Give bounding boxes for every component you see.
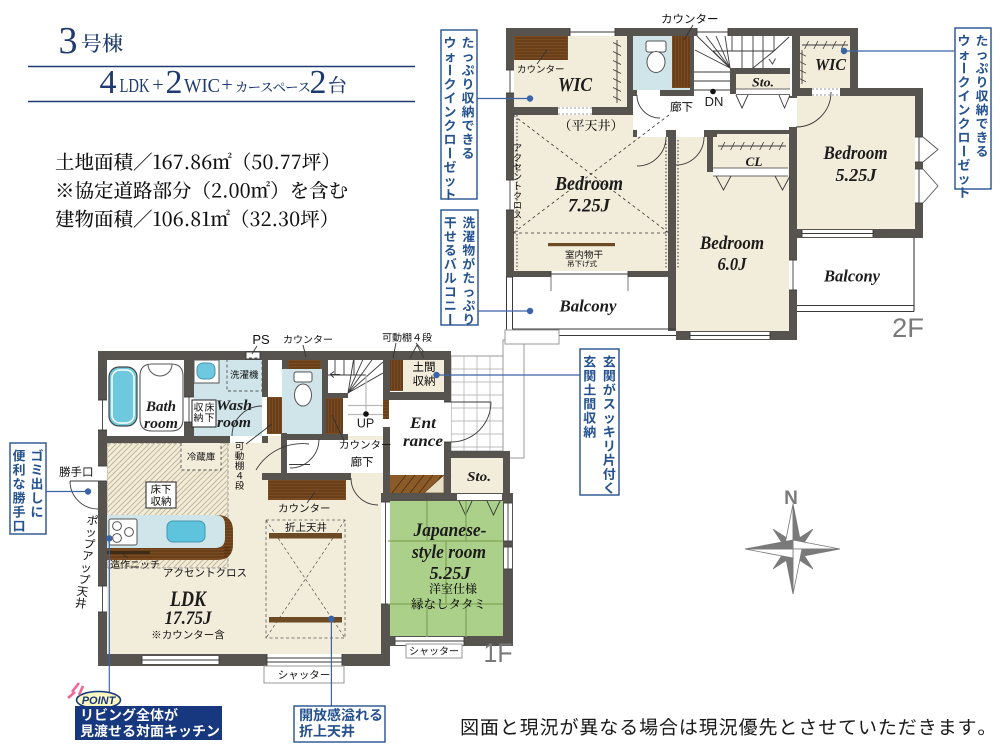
svg-text:4: 4 (100, 64, 117, 101)
svg-text:Balcony: Balcony (559, 297, 617, 316)
svg-text:UP: UP (357, 417, 374, 431)
svg-text:2: 2 (166, 64, 183, 101)
svg-text:5.25J: 5.25J (430, 563, 472, 583)
svg-text:5.25J: 5.25J (836, 165, 878, 185)
svg-text:2: 2 (310, 64, 327, 101)
svg-text:CL: CL (746, 154, 763, 169)
svg-text:Sto.: Sto. (752, 75, 774, 90)
svg-text:room: room (217, 415, 251, 431)
svg-text:PS: PS (252, 332, 270, 347)
svg-text:rance: rance (403, 433, 443, 450)
svg-text:17.75J: 17.75J (165, 608, 212, 629)
svg-text:WIC: WIC (815, 55, 847, 74)
svg-text:+: + (221, 74, 232, 96)
svg-text:Bedroom: Bedroom (554, 173, 623, 195)
svg-text:Sto.: Sto. (467, 470, 491, 485)
svg-text:2F: 2F (892, 313, 924, 343)
svg-text:+: + (152, 74, 163, 96)
svg-text:POINT: POINT (82, 695, 117, 707)
svg-text:Ent: Ent (409, 415, 437, 432)
svg-text:WIC: WIC (184, 75, 220, 97)
svg-text:WIC: WIC (558, 74, 593, 96)
svg-text:DN: DN (705, 94, 724, 109)
svg-text:Bedroom: Bedroom (699, 233, 764, 254)
svg-text:Bath: Bath (145, 399, 176, 415)
svg-text:Balcony: Balcony (823, 267, 880, 286)
svg-text:3: 3 (59, 20, 78, 62)
svg-text:Japanese-: Japanese- (413, 520, 487, 541)
svg-text:style room: style room (411, 542, 486, 563)
svg-text:6.0J: 6.0J (718, 254, 748, 274)
svg-text:LDK: LDK (120, 75, 150, 97)
svg-text:Wash: Wash (216, 398, 252, 414)
svg-text:7.25J: 7.25J (568, 196, 610, 217)
svg-text:1F: 1F (484, 638, 513, 668)
svg-text:room: room (144, 416, 178, 432)
svg-text:N: N (784, 488, 798, 509)
svg-text:Bedroom: Bedroom (823, 143, 888, 164)
